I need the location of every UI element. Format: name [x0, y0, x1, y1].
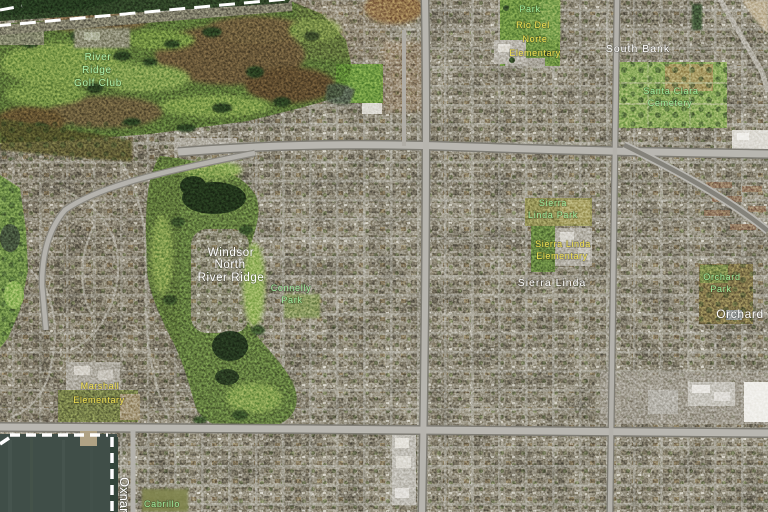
svg-text:Santa Clara: Santa Clara [643, 86, 698, 96]
svg-text:Windsor: Windsor [208, 247, 254, 259]
svg-text:Marshall: Marshall [81, 381, 120, 391]
svg-text:Cemetery: Cemetery [648, 98, 693, 108]
svg-text:River: River [85, 52, 112, 63]
svg-text:Sierra Linda: Sierra Linda [535, 239, 591, 249]
svg-text:Connelly: Connelly [271, 283, 312, 293]
svg-text:Rio Del: Rio Del [516, 20, 550, 30]
svg-text:Ridge: Ridge [82, 65, 112, 76]
svg-text:Golf Club: Golf Club [74, 78, 122, 89]
svg-text:Park: Park [710, 284, 731, 294]
svg-text:Elementary: Elementary [536, 251, 588, 261]
svg-text:Cabrillo: Cabrillo [144, 499, 180, 509]
svg-text:Sierra Linda: Sierra Linda [518, 277, 587, 289]
svg-text:Orchard: Orchard [716, 307, 764, 321]
svg-text:Oxnard: Oxnard [117, 477, 132, 512]
svg-text:Linda Park: Linda Park [528, 210, 578, 220]
svg-text:Elementary: Elementary [73, 395, 125, 405]
svg-text:South Bank: South Bank [606, 43, 670, 55]
svg-text:North: North [214, 259, 245, 271]
svg-text:Park: Park [519, 4, 540, 14]
svg-text:Park: Park [281, 295, 302, 305]
svg-text:River Ridge: River Ridge [198, 272, 265, 284]
svg-text:Elementary: Elementary [509, 48, 561, 58]
svg-text:Orchard: Orchard [703, 272, 740, 282]
svg-text:Sierra: Sierra [539, 198, 567, 208]
svg-text:Norte: Norte [522, 34, 547, 44]
